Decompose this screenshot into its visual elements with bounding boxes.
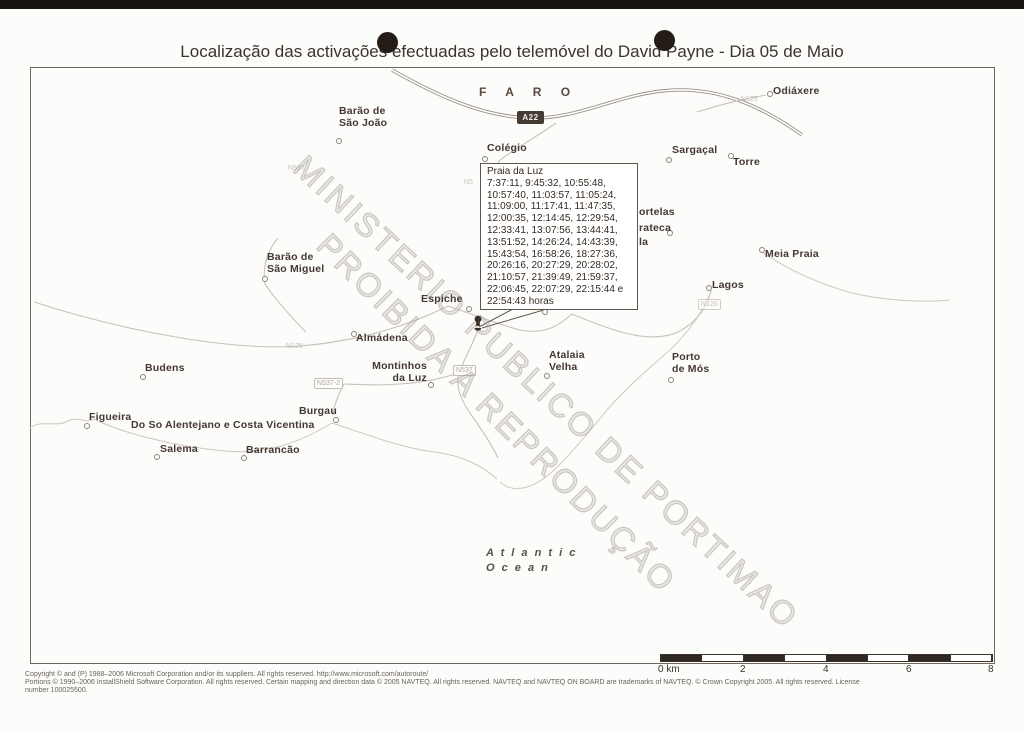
town-label: Barão de São Miguel xyxy=(267,252,324,275)
town-label: Burgau xyxy=(299,406,337,418)
town-label: Porto de Mós xyxy=(672,352,709,375)
town-label: Espiche xyxy=(421,294,463,306)
town-label: Almádena xyxy=(356,333,408,345)
town-label: Budens xyxy=(145,363,185,375)
town-marker-icon xyxy=(84,423,90,429)
road-number-label: N5 xyxy=(464,178,473,187)
ocean-label: A t l a n t i c O c e a n xyxy=(486,546,577,576)
town-label: Odiáxere xyxy=(773,86,820,98)
town-label: Lagos xyxy=(712,280,744,292)
scale-bar-segment xyxy=(950,655,992,661)
district-label-faro: F A R O xyxy=(479,85,578,99)
callout-time-line: 12:33:41, 13:07:56, 13:44:41, xyxy=(487,225,637,237)
town-marker-icon xyxy=(668,377,674,383)
town-marker-icon xyxy=(336,138,342,144)
callout-time-line: 22:54:43 horas xyxy=(487,296,637,308)
town-label: Meia Praia xyxy=(765,249,819,261)
town-marker-icon xyxy=(140,374,146,380)
callout-time-line: 21:10:57, 21:39:49, 21:59:37, xyxy=(487,272,637,284)
callout-box: Praia da Luz 7:37:11, 9:45:32, 10:55:48,… xyxy=(480,163,638,310)
highway-shield-a22: A22 xyxy=(517,111,544,124)
phone-activation-pin-icon xyxy=(471,315,485,332)
scale-bar-segment xyxy=(909,655,949,661)
road-number-label: N125 xyxy=(698,299,721,310)
town-label: Do So Alentejano e Costa Vicentina xyxy=(131,420,315,432)
callout-time-line: 7:37:11, 9:45:32, 10:55:48, xyxy=(487,178,637,190)
town-marker-icon xyxy=(262,276,268,282)
town-marker-icon xyxy=(428,382,434,388)
town-label: Torre xyxy=(733,157,760,169)
callout-time-line: 11:09:00, 11:17:41, 11:47:35, xyxy=(487,201,637,213)
callout-times: 7:37:11, 9:45:32, 10:55:48,10:57:40, 11:… xyxy=(487,178,637,308)
road-number-label: N125 xyxy=(741,95,758,104)
road-number-label: N125 xyxy=(286,342,303,351)
ocean-label-line1: A t l a n t i c xyxy=(486,546,577,561)
town-label: Barão de São João xyxy=(339,106,387,129)
callout-time-line: 13:51:52, 14:26:24, 14:43:39, xyxy=(487,237,637,249)
callout-title: Praia da Luz xyxy=(487,166,637,178)
callout-time-line: 15:43:54, 16:58:26, 18:27:36, xyxy=(487,249,637,261)
town-marker-icon xyxy=(333,417,339,423)
scale-bar-segment xyxy=(784,655,826,661)
town-marker-icon xyxy=(466,306,472,312)
copyright-line-2: Portions © 1990–2006 InstallShield Softw… xyxy=(25,679,985,687)
hole-punch-icon xyxy=(654,30,675,51)
scanned-map-page: Localização das activações efectuadas pe… xyxy=(0,0,1024,733)
town-label: Salema xyxy=(160,444,198,456)
town-marker-icon xyxy=(482,156,488,162)
callout-time-line: 10:57:40, 11:03:57, 11:05:24, xyxy=(487,190,637,202)
town-label: ortelas xyxy=(639,207,675,219)
town-label: Atalaia Velha xyxy=(549,350,585,373)
town-marker-icon xyxy=(666,157,672,163)
scale-bar-segment xyxy=(827,655,867,661)
scale-bar-segment xyxy=(744,655,784,661)
copyright-line-1: Copyright © and (P) 1988–2006 Microsoft … xyxy=(25,671,985,679)
town-label: Figueira xyxy=(89,412,131,424)
ocean-label-line2: O c e a n xyxy=(486,561,577,576)
scale-label: 8 xyxy=(988,664,994,676)
scale-bar xyxy=(660,654,993,662)
road-number-label: N537-2 xyxy=(314,378,343,389)
town-label: Sargaçal xyxy=(672,145,717,157)
copyright-line-3: number 100025500. xyxy=(25,687,985,695)
town-label: Barrancão xyxy=(246,445,300,457)
town-label: Montinhos da Luz xyxy=(371,361,427,384)
callout-time-line: 22:06:45, 22:07:29, 22:15:44 e xyxy=(487,284,637,296)
page-title: Localização das activações efectuadas pe… xyxy=(0,42,1024,62)
hole-punch-icon xyxy=(377,32,398,53)
scale-bar-segment xyxy=(701,655,743,661)
town-label: la xyxy=(639,237,648,249)
callout-time-line: 12:00:35, 12:14:45, 12:29:54, xyxy=(487,213,637,225)
town-marker-icon xyxy=(544,373,550,379)
scale-bar-segment xyxy=(661,655,701,661)
scan-edge-strip xyxy=(0,0,1024,9)
copyright-block: Copyright © and (P) 1988–2006 Microsoft … xyxy=(25,671,985,696)
town-label: rateca xyxy=(639,223,671,235)
scale-bar-segment xyxy=(867,655,909,661)
town-label: Colégio xyxy=(487,143,527,155)
callout-time-line: 20:26:16, 20:27:29, 20:28:02, xyxy=(487,260,637,272)
